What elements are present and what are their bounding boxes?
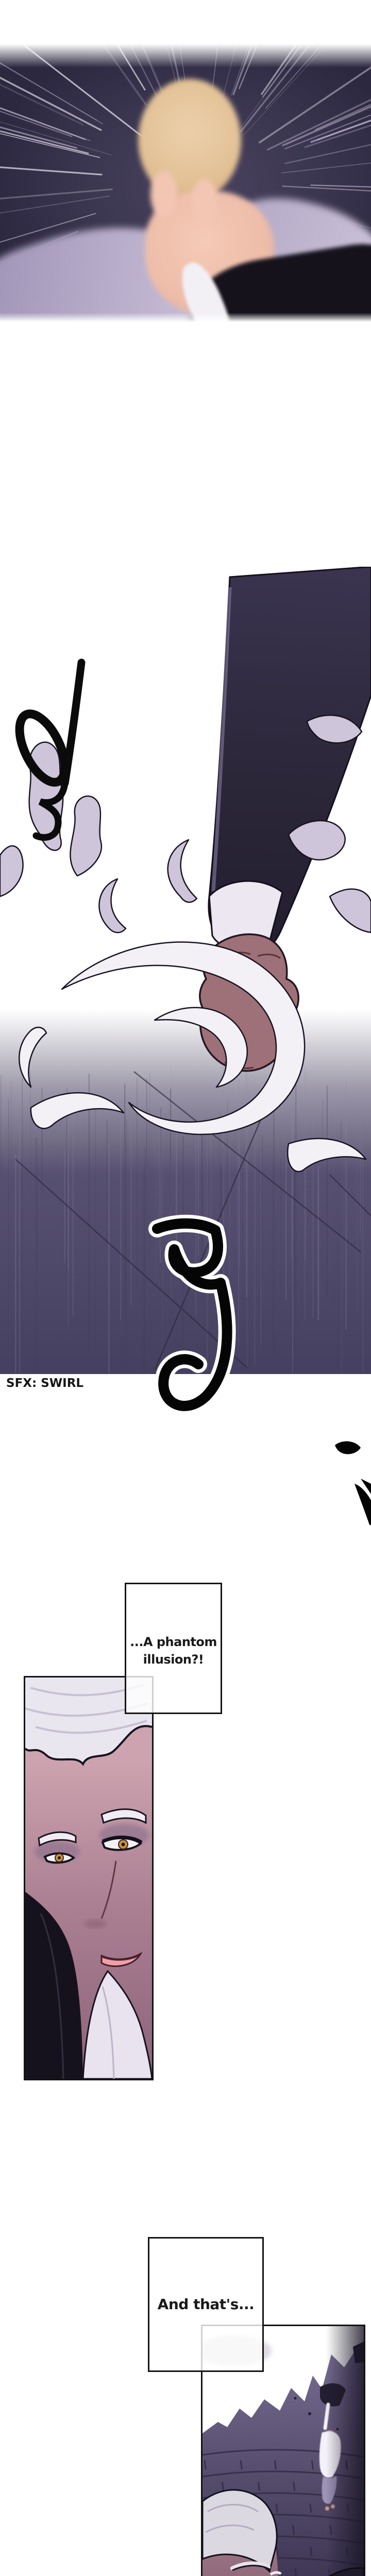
dark-panel-gradient: [0, 1010, 371, 1374]
speech-bubble-andthats: And that's...: [148, 2237, 264, 2372]
hand-finger-1: [150, 171, 177, 218]
left-eye: [45, 1853, 74, 1862]
speech-bubble-phantom: ...A phantom illusion?!: [125, 1583, 222, 1714]
speech-line: ...A phantom: [130, 1633, 217, 1651]
impact-panel: [0, 44, 371, 324]
sfx-swirl-caption: SFX: SWIRL: [6, 1377, 83, 1390]
webtoon-page: SFX: SWIRL ...A phantom illusion?!: [0, 0, 371, 2576]
glare-panel-art: [25, 1677, 152, 2079]
speech-line: And that's...: [158, 2296, 255, 2313]
speech-line: illusion?!: [143, 1651, 204, 1668]
glare-closeup-panel: [24, 1676, 154, 2080]
panel-bottom-fade: [0, 313, 371, 324]
nose-shadow: [84, 1919, 107, 1928]
hand-finger-2: [192, 179, 217, 222]
panel-top-fade: [0, 44, 371, 67]
right-vignette: [326, 2326, 364, 2576]
